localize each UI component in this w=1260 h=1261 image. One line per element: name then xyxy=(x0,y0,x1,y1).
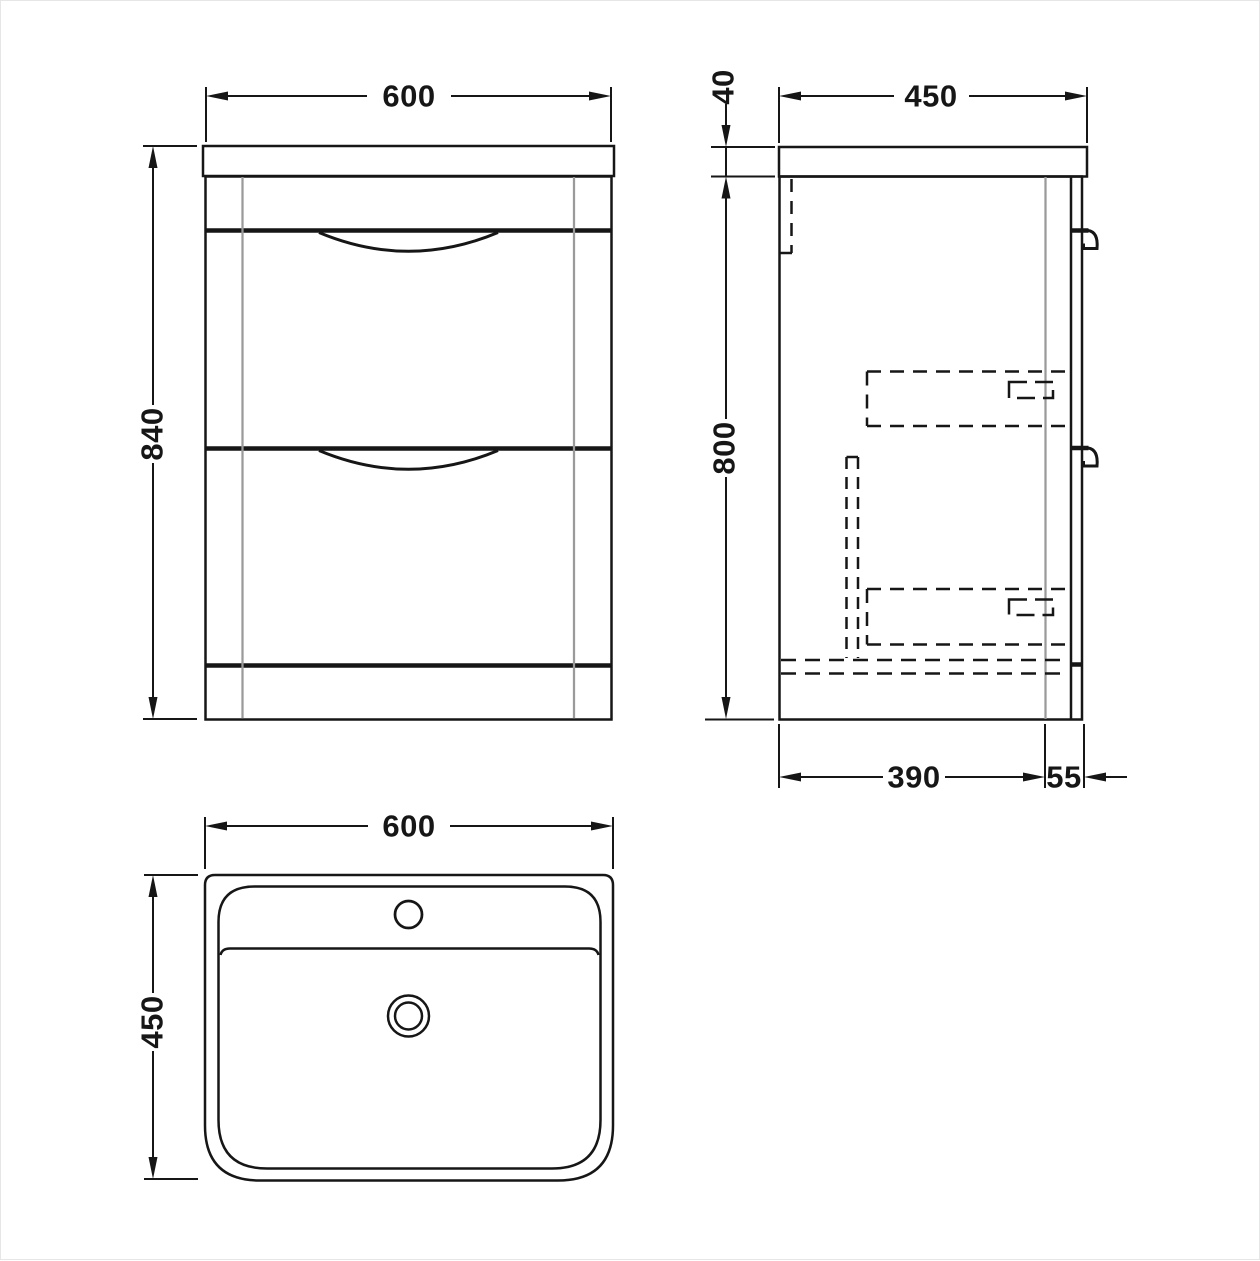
side-worktop-thickness-label: 40 xyxy=(706,69,741,104)
side-depth-dimension-label: 450 xyxy=(904,79,957,114)
tap-hole xyxy=(395,901,422,928)
hidden-detail-lines xyxy=(780,179,1069,674)
side-height-arrow-top xyxy=(722,177,731,199)
front-width-dimension-label: 600 xyxy=(382,79,435,114)
plan-depth-dimension-label: 450 xyxy=(135,995,170,1048)
dimension-arrowheads xyxy=(149,92,1107,1180)
side-elevation-view xyxy=(779,147,1097,720)
side-base-arrow-right xyxy=(1023,773,1045,782)
side-base-arrow-left xyxy=(779,773,801,782)
basin-plan-view xyxy=(205,875,613,1181)
dimension-lines xyxy=(143,87,1127,1179)
plan-depth-arrow-top xyxy=(149,875,158,897)
side-worktop-arrow-top xyxy=(722,125,731,147)
side-worktop xyxy=(779,147,1087,177)
front-drawer1-handle-recess xyxy=(319,233,498,252)
front-height-dimension-label: 840 xyxy=(135,407,170,460)
side-depth-arrow-right xyxy=(1065,92,1087,101)
side-handle1-profile xyxy=(1084,231,1098,249)
front-worktop xyxy=(203,146,614,176)
front-height-arrow-bottom xyxy=(149,697,158,719)
front-drawer2-handle-recess xyxy=(319,451,498,470)
side-front-offset-arrow xyxy=(1084,773,1106,782)
side-depth-arrow-left xyxy=(779,92,801,101)
side-base-depth-label: 390 xyxy=(887,760,940,795)
front-width-arrow-right xyxy=(589,92,611,101)
side-height-arrow-bottom xyxy=(722,697,731,719)
side-drawer-front-label: 55 xyxy=(1046,760,1081,795)
waste-hole-inner xyxy=(395,1003,422,1030)
side-handle2-profile xyxy=(1084,448,1098,466)
plan-width-arrow-left xyxy=(205,822,227,831)
front-height-arrow-top xyxy=(149,146,158,168)
vanity-drawing-svg: 600 840 450 40 800 390 55 600 450 xyxy=(1,1,1260,1261)
technical-drawing-canvas: 600 840 450 40 800 390 55 600 450 xyxy=(0,0,1260,1260)
basin-outer-rim xyxy=(205,875,613,1181)
plan-width-arrow-right xyxy=(591,822,613,831)
thick-feature-lines xyxy=(206,231,1089,666)
front-width-arrow-left xyxy=(206,92,228,101)
dimension-labels: 600 840 450 40 800 390 55 600 450 xyxy=(135,69,1082,1048)
basin-deck-divider-line xyxy=(221,949,599,956)
side-cabinet-body xyxy=(780,177,1083,720)
side-cabinet-height-label: 800 xyxy=(707,421,742,474)
plan-width-dimension-label: 600 xyxy=(382,809,435,844)
plan-depth-arrow-bottom xyxy=(149,1157,158,1179)
